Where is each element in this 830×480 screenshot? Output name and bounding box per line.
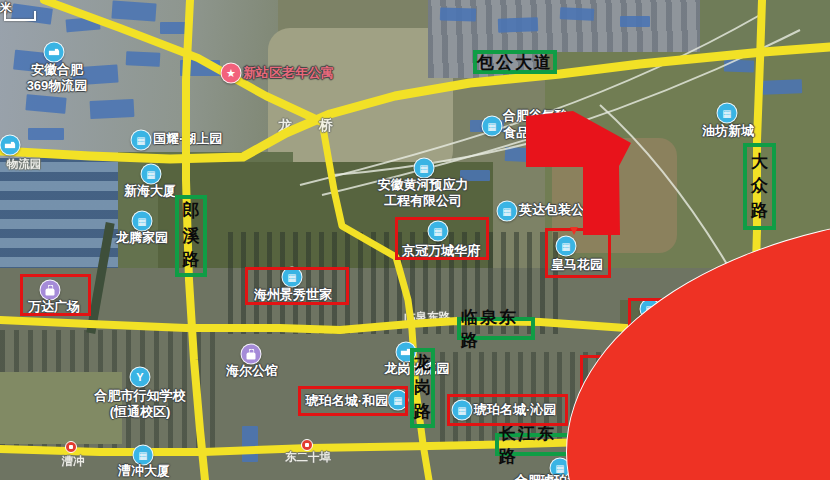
scale-bar: 米 xyxy=(0,0,830,480)
map-canvas[interactable]: 龙临泉东路国耀·湖上园 桥物流园东二十埠漕冲王岗三十埠安徽合肥369物流园★新站… xyxy=(0,0,830,480)
scale-bar-line xyxy=(4,11,36,21)
